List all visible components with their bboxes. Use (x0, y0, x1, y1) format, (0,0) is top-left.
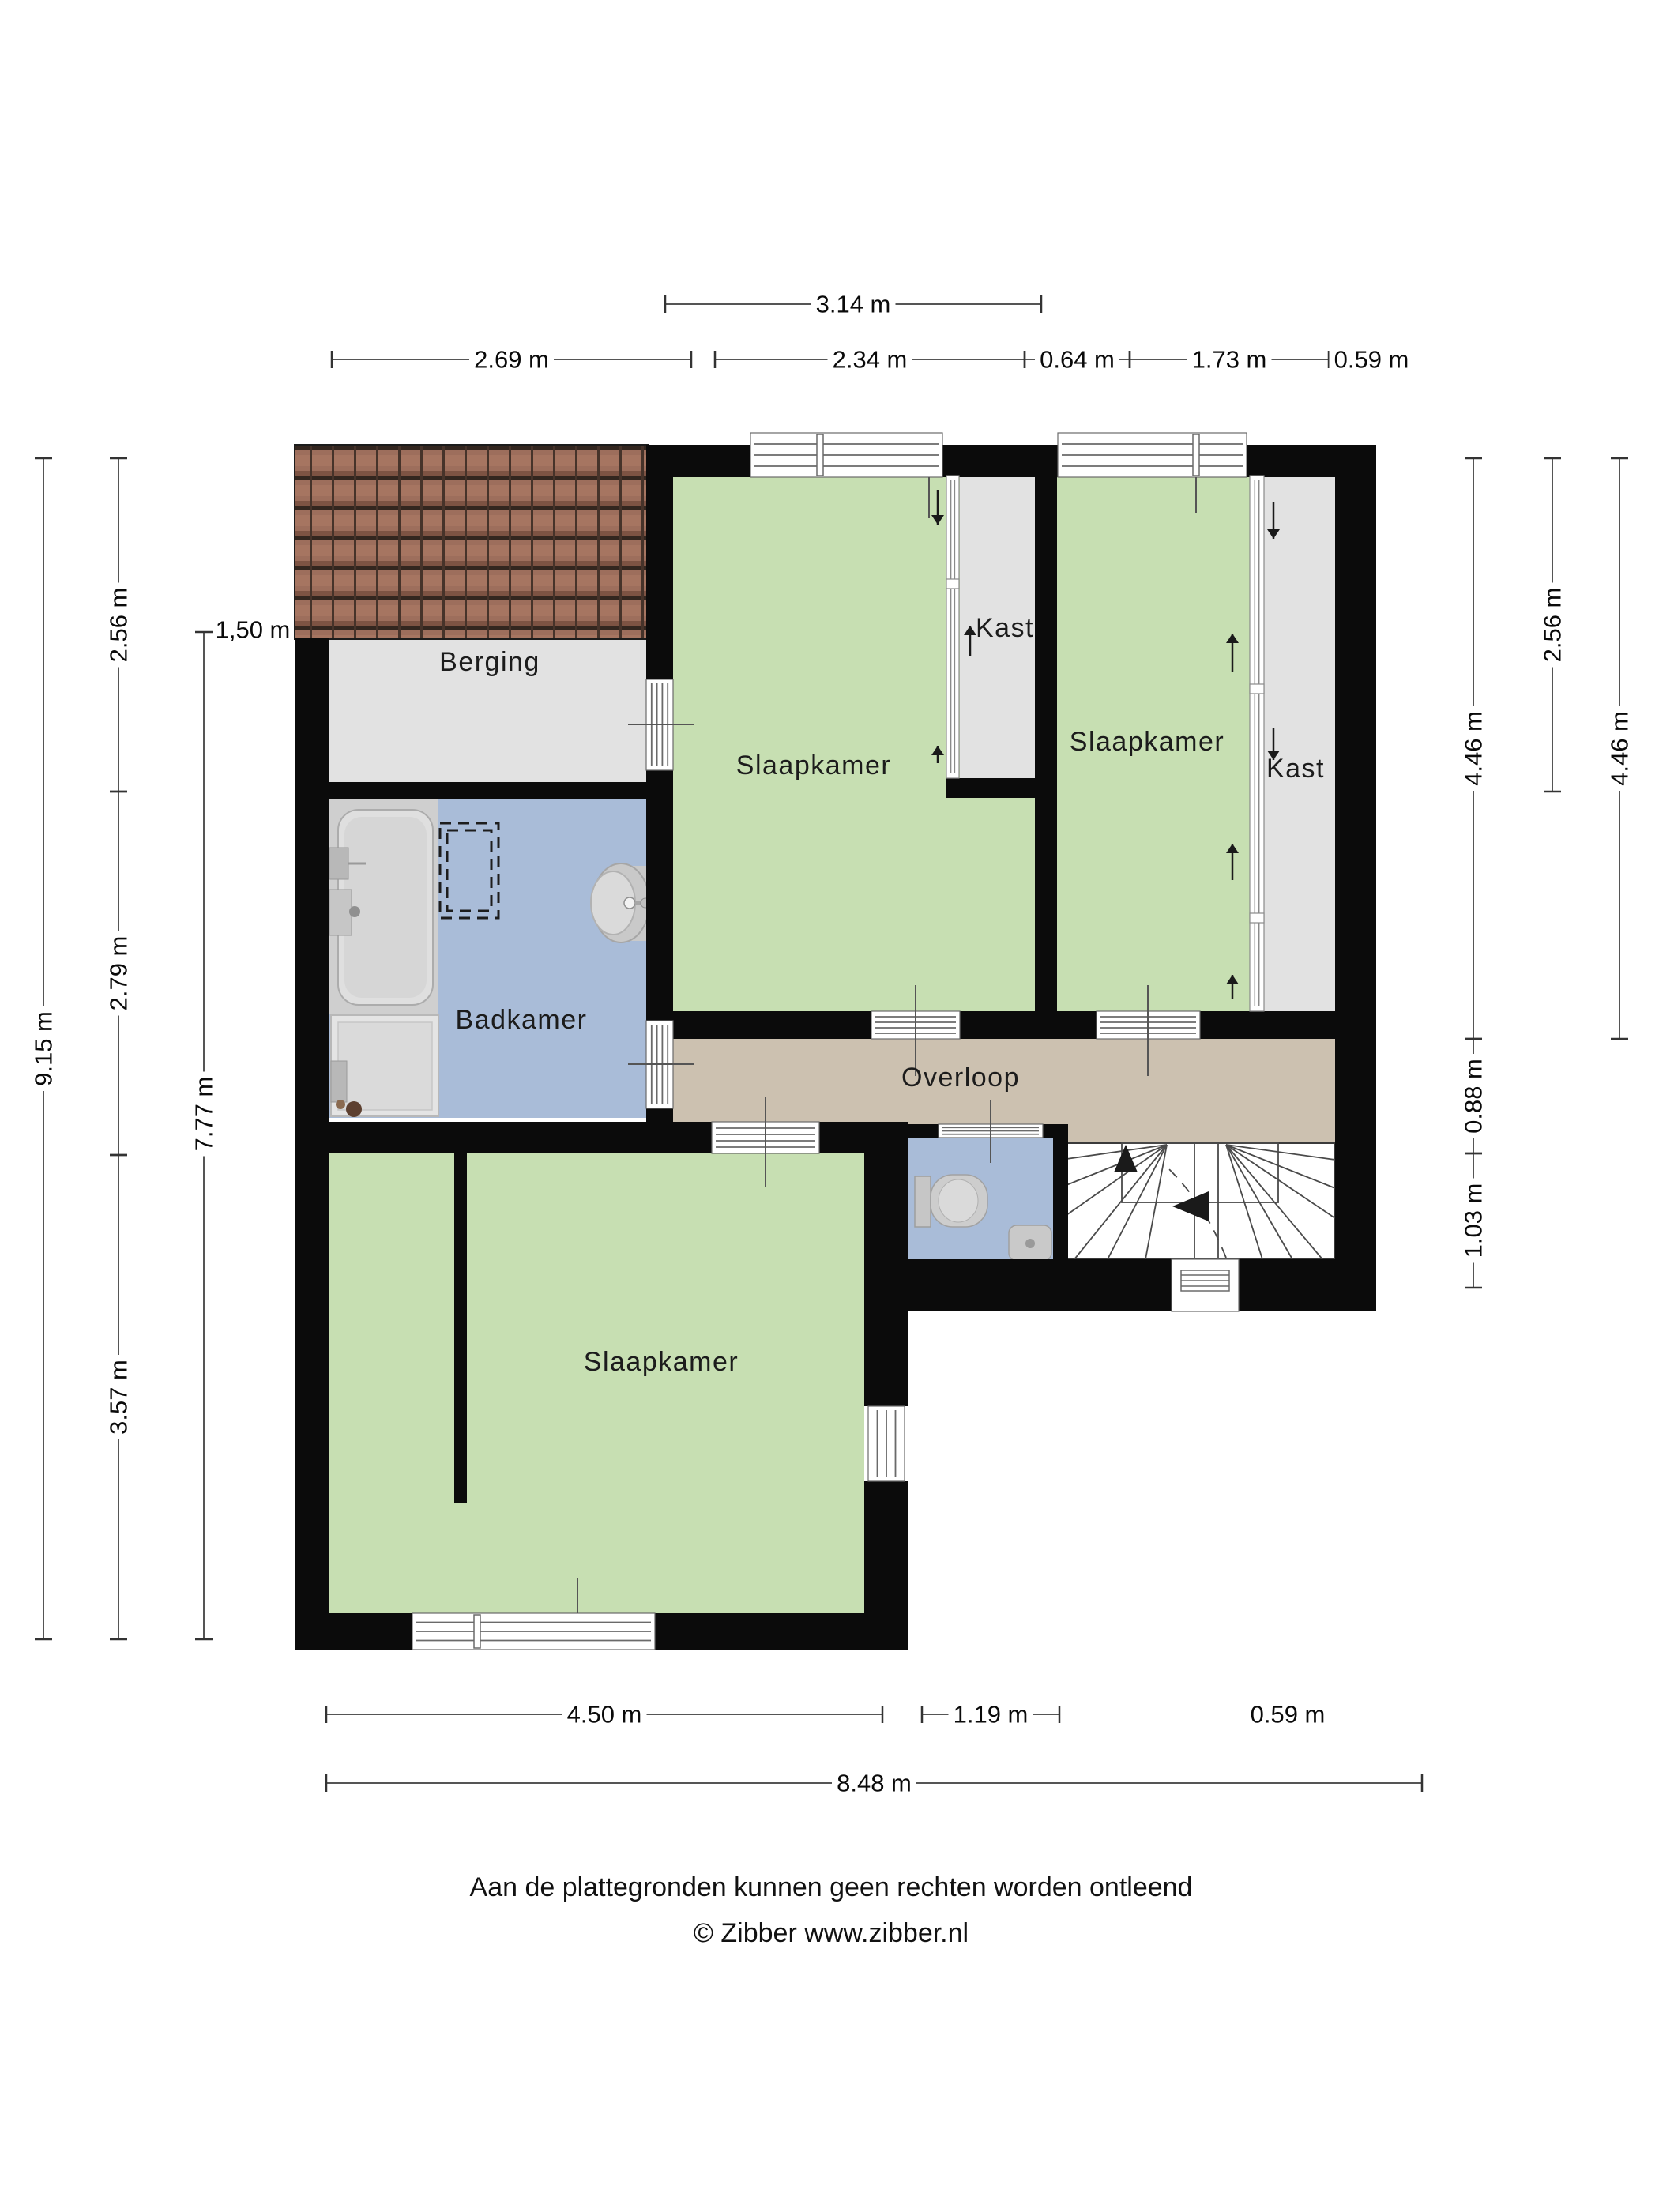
dimension-label-group: 2.56 m (103, 583, 134, 668)
fixture (329, 890, 352, 935)
dimension-label: 7.77 m (190, 1077, 218, 1152)
dimension-label: 0.88 m (1460, 1059, 1488, 1134)
closet-track (946, 476, 959, 778)
dimension-label: 3.14 m (816, 291, 891, 318)
dimension-label-group: 2.34 m (828, 344, 912, 375)
wall (1247, 445, 1335, 477)
wall (864, 1124, 939, 1138)
floors-layer (329, 476, 1335, 1613)
floorplan-page: BergingSlaapkamerKastSlaapkamerKastBadka… (0, 0, 1659, 2212)
closet-track-break (946, 579, 959, 589)
wall (295, 1613, 412, 1650)
fixture (336, 1100, 345, 1109)
roof-layer (295, 445, 648, 639)
room-floor-berging (329, 616, 646, 784)
wall (329, 782, 646, 799)
dimension-label: 0.64 m (1040, 346, 1115, 374)
wall (670, 445, 750, 477)
wall (946, 778, 1035, 798)
fixture (939, 1179, 978, 1222)
dimension-label-group: 4.46 m (1458, 706, 1489, 791)
dimension-label-group: 9.15 m (28, 1006, 59, 1091)
dimension-label: 0.59 m (1251, 1701, 1326, 1729)
wall (295, 1122, 712, 1153)
room-label: Overloop (901, 1063, 1020, 1093)
dimension-label-group: 3.14 m (811, 288, 896, 320)
footer-copyright: © Zibber www.zibber.nl (694, 1918, 969, 1948)
wall (960, 1011, 1097, 1039)
room-floor-kast-2 (1264, 476, 1335, 1011)
wall (454, 1153, 467, 1503)
wall (1035, 445, 1057, 1011)
dimension-label-group: 2.56 m (1537, 583, 1568, 668)
fixture (346, 1101, 362, 1117)
fixture (329, 848, 348, 879)
footer-disclaimer: Aan de plattegronden kunnen geen rechten… (470, 1872, 1193, 1902)
dimension-label: 1.19 m (954, 1701, 1029, 1729)
dimension-label-group: 1.73 m (1187, 344, 1272, 375)
dimension-label: 4.46 m (1460, 711, 1488, 786)
dimension-label-group: 4.46 m (1604, 706, 1635, 791)
fixture (349, 906, 360, 917)
wall (1200, 1011, 1335, 1039)
dimension-label: 0.59 m (1334, 346, 1409, 374)
room-floor-slaapkamer-3 (329, 1153, 864, 1613)
dimension-label-group: 0.59 m (1330, 344, 1414, 375)
fixture (915, 1176, 931, 1227)
dimension-label: 2.79 m (105, 936, 133, 1011)
window-divider (474, 1615, 480, 1648)
dimension-label-group: 2.69 m (469, 344, 554, 375)
dimension-label-group: 3.57 m (103, 1355, 134, 1439)
dimension-label: 3.57 m (105, 1360, 133, 1435)
room-label: Kast (1266, 754, 1325, 784)
dimension-label-group: 1.03 m (1458, 1179, 1489, 1263)
dimension-label: 2.56 m (105, 588, 133, 663)
fixture (624, 897, 635, 908)
wall (1239, 1259, 1376, 1311)
closet-track (1250, 476, 1264, 1011)
room-label: Badkamer (456, 1005, 588, 1035)
dimension-label: 2.34 m (833, 346, 908, 374)
dimension-label: 8.48 m (837, 1770, 912, 1797)
floor-plan-svg: BergingSlaapkamerKastSlaapkamerKastBadka… (0, 0, 1659, 2212)
dimension-label: 4.46 m (1606, 711, 1634, 786)
dimension-label: 4.50 m (567, 1701, 642, 1729)
dimension-label-group: 2.79 m (103, 931, 134, 1016)
dimension-label-group: 1.19 m (949, 1698, 1033, 1730)
height-marker-label: 1,50 m (216, 616, 291, 644)
dimension-label: 9.15 m (30, 1011, 58, 1086)
roof-tiles (295, 445, 648, 639)
fixture (338, 1022, 432, 1110)
wall (1053, 1138, 1068, 1259)
dimension-label-group: 0.64 m (1035, 344, 1119, 375)
dimension-label-group: 7.77 m (188, 1072, 220, 1157)
dimension-label: 2.56 m (1539, 588, 1567, 663)
fixture (331, 1061, 347, 1102)
dimension-label: 2.69 m (474, 346, 549, 374)
wall (646, 770, 673, 1021)
dimension-label-group: 0.59 m (1246, 1698, 1330, 1730)
dimension-label-group: 8.48 m (832, 1767, 916, 1799)
closet-track-break (1250, 913, 1264, 923)
dimension-label-group: 4.50 m (562, 1698, 647, 1730)
wall (655, 1613, 908, 1650)
window-divider (1193, 434, 1199, 476)
window-divider (817, 434, 823, 476)
wall (673, 1011, 871, 1039)
closet-track-break (1250, 684, 1264, 694)
dimension-label: 1.73 m (1192, 346, 1267, 374)
room-label: Slaapkamer (584, 1347, 739, 1377)
fixture (1025, 1239, 1035, 1248)
dimension-label-group: 0.88 m (1458, 1054, 1489, 1138)
wall (646, 445, 673, 679)
wall (1335, 445, 1376, 1311)
room-label: Kast (976, 613, 1034, 643)
wall (864, 1259, 1172, 1311)
dimension-label: 1.03 m (1460, 1183, 1488, 1258)
room-label: Slaapkamer (1070, 727, 1224, 757)
footer-layer: Aan de plattegronden kunnen geen rechten… (470, 1872, 1193, 1948)
room-label: Slaapkamer (736, 750, 891, 781)
room-label: Berging (439, 647, 540, 677)
wall (1043, 1124, 1068, 1138)
